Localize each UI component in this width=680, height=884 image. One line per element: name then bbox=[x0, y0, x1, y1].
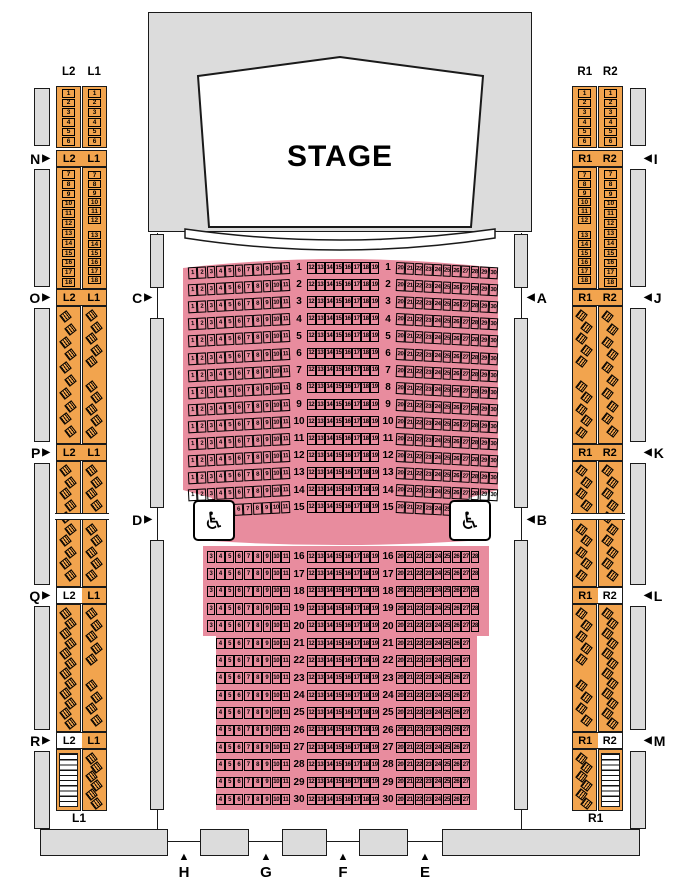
seat: 20 bbox=[396, 348, 405, 360]
seat: 17 bbox=[352, 707, 361, 719]
seat: 20 bbox=[396, 759, 405, 771]
seat: 28 bbox=[470, 454, 479, 466]
seat: 9 bbox=[262, 777, 271, 789]
seat: 13 bbox=[316, 707, 325, 719]
seat: 5 bbox=[225, 436, 234, 448]
seat: 17 bbox=[352, 501, 361, 513]
seat: 7 bbox=[244, 672, 253, 684]
seat: 27 bbox=[461, 690, 470, 702]
seat: 6 bbox=[235, 586, 244, 598]
seat: 8 bbox=[253, 366, 262, 378]
seat: 16 bbox=[343, 551, 352, 563]
seat: 17 bbox=[352, 551, 361, 563]
seat: 19 bbox=[370, 568, 379, 580]
seat: 19 bbox=[370, 313, 379, 325]
seat: 9 bbox=[262, 725, 271, 737]
seat: 19 bbox=[370, 655, 379, 667]
seat: 4 bbox=[216, 742, 225, 754]
seat: 5 bbox=[578, 128, 591, 137]
seat: 8 bbox=[253, 281, 262, 293]
seat: 15 bbox=[334, 586, 343, 598]
door-label-J: J bbox=[654, 291, 662, 305]
right-band-label: R1 bbox=[573, 733, 598, 748]
seat: 14 bbox=[325, 586, 334, 598]
seat: 27 bbox=[461, 283, 470, 295]
left-band-label: L1 bbox=[82, 151, 107, 166]
seat: 11 bbox=[281, 551, 290, 563]
box-R2-section-5 bbox=[598, 604, 623, 732]
stage-apron bbox=[185, 229, 495, 250]
orchestra-row-23-center-block: 1213141516171819 bbox=[307, 672, 379, 684]
seat: 29 bbox=[479, 386, 488, 398]
orchestra-row-25-left-block: 4567891011 bbox=[216, 707, 290, 719]
seat: 16 bbox=[343, 568, 352, 580]
seat: 8 bbox=[253, 638, 262, 650]
seat: 15 bbox=[334, 777, 343, 789]
seat: 4 bbox=[216, 690, 225, 702]
angled-seat-group bbox=[599, 609, 624, 729]
entrance-label-G: G bbox=[260, 863, 272, 883]
seat: 8 bbox=[253, 603, 262, 615]
seat: 3 bbox=[604, 108, 617, 117]
seat: 17 bbox=[352, 759, 361, 771]
seat: 6 bbox=[234, 794, 243, 806]
orchestra-row-6-center-block: 1213141516171819 bbox=[307, 348, 379, 360]
seat: 13 bbox=[316, 313, 325, 325]
seat: 12 bbox=[307, 620, 316, 632]
orchestra-row-17-right-block: 202122232425262728 bbox=[396, 568, 479, 580]
seat: 15 bbox=[334, 313, 343, 325]
inner-left-wall bbox=[150, 540, 164, 810]
seat: 12 bbox=[307, 501, 316, 513]
seat: 9 bbox=[262, 280, 271, 292]
seat: 18 bbox=[88, 276, 101, 284]
seat: 6 bbox=[234, 282, 243, 294]
seat: 19 bbox=[370, 707, 379, 719]
theater-seating-chart: STAGE L2L1123456123456L2L178910111213141… bbox=[0, 0, 680, 884]
seat: 2 bbox=[197, 454, 206, 466]
orchestra-row-22-center-block: 1213141516171819 bbox=[307, 655, 379, 667]
angled-seat-group bbox=[83, 466, 108, 512]
seat: 22 bbox=[415, 551, 424, 563]
door-arrow-icon: ◀ bbox=[644, 293, 652, 303]
seat-group: 123456 bbox=[62, 89, 75, 147]
seat: 10 bbox=[272, 568, 281, 580]
angled-seat-group bbox=[83, 609, 108, 667]
seat: 17 bbox=[352, 725, 361, 737]
seat: 13 bbox=[316, 279, 325, 291]
seat: 8 bbox=[253, 298, 262, 310]
seat: 8 bbox=[253, 434, 262, 446]
seat: 29 bbox=[479, 301, 488, 313]
seat: 20 bbox=[396, 330, 405, 342]
seat: 25 bbox=[443, 672, 452, 684]
door-label-I: I bbox=[654, 152, 658, 166]
seat: 21 bbox=[405, 262, 414, 274]
seat: 27 bbox=[461, 620, 470, 632]
seat: 6 bbox=[604, 137, 617, 146]
orchestra-row-18-right-block: 202122232425262728 bbox=[396, 586, 479, 598]
door-label-K: K bbox=[654, 446, 664, 460]
seat: 3 bbox=[206, 283, 215, 295]
entrance-marker-E: ▲E bbox=[412, 852, 438, 882]
angled-seat bbox=[59, 464, 72, 477]
seat: 19 bbox=[370, 794, 379, 806]
seat: 14 bbox=[325, 655, 334, 667]
seat: 5 bbox=[225, 655, 234, 667]
seat: 11 bbox=[281, 433, 290, 445]
seat: 4 bbox=[216, 488, 225, 500]
seat: 18 bbox=[361, 399, 370, 411]
seat: 12 bbox=[307, 382, 316, 394]
orchestra-row-21-right-block: 2021222324252627 bbox=[396, 638, 470, 650]
entrance-label-E: E bbox=[420, 863, 430, 883]
seat: 28 bbox=[470, 283, 479, 295]
lobby-door-line bbox=[168, 841, 200, 842]
angled-seat bbox=[85, 309, 98, 322]
seat: 11 bbox=[281, 794, 290, 806]
seat: 11 bbox=[281, 296, 290, 308]
seat: 15 bbox=[334, 672, 343, 684]
angled-seat bbox=[580, 714, 593, 727]
orchestra-row-29-center-block: 1213141516171819 bbox=[307, 777, 379, 789]
wheelchair-icon: ♿ bbox=[193, 500, 235, 541]
seat: 15 bbox=[334, 399, 343, 411]
orchestra-row-19-right-block: 202122232425262728 bbox=[396, 603, 479, 615]
seat: 10 bbox=[272, 725, 281, 737]
right-band-label: R1 bbox=[573, 290, 598, 305]
seat: 16 bbox=[343, 672, 352, 684]
door-label-M: M bbox=[654, 734, 666, 748]
seat: 6 bbox=[234, 453, 243, 465]
right-band-label: R1 bbox=[573, 151, 598, 166]
seat: 13 bbox=[316, 467, 325, 479]
seat: 13 bbox=[316, 690, 325, 702]
seat: 21 bbox=[405, 348, 414, 360]
angled-seat bbox=[575, 702, 588, 715]
seat: 4 bbox=[216, 300, 225, 312]
seat: 19 bbox=[370, 603, 379, 615]
door-marker-N: N▶ bbox=[0, 152, 50, 167]
right-box-band: R1R2 bbox=[572, 289, 623, 306]
seat: 6 bbox=[234, 655, 243, 667]
seat: 12 bbox=[578, 216, 591, 224]
seat: 8 bbox=[253, 486, 262, 498]
orchestra-row-30-right-block: 2021222324252627 bbox=[396, 794, 470, 806]
seat: 11 bbox=[281, 279, 290, 291]
seat: 9 bbox=[263, 603, 272, 615]
seat: 8 bbox=[88, 180, 101, 188]
seat: 28 bbox=[470, 266, 479, 278]
seat: 26 bbox=[451, 470, 460, 482]
seat: 3 bbox=[207, 568, 216, 580]
angled-seat bbox=[575, 679, 588, 692]
seat: 14 bbox=[325, 725, 334, 737]
right-outer-wall bbox=[630, 751, 646, 829]
right-band-label: R2 bbox=[598, 588, 623, 603]
angled-seat bbox=[59, 557, 72, 570]
seat: 1 bbox=[188, 438, 197, 450]
seat: 18 bbox=[62, 278, 75, 287]
seat: 5 bbox=[225, 333, 234, 345]
angled-seat bbox=[64, 717, 77, 730]
lobby-wall-segment bbox=[359, 829, 408, 856]
seat: 22 bbox=[414, 348, 423, 360]
seat: 11 bbox=[281, 568, 290, 580]
angled-seat bbox=[606, 400, 619, 413]
seat: 29 bbox=[479, 489, 488, 501]
seat: 24 bbox=[433, 794, 442, 806]
seat: 6 bbox=[578, 137, 591, 146]
seat: 13 bbox=[316, 725, 325, 737]
seat: 13 bbox=[316, 296, 325, 308]
angled-seat-group bbox=[573, 466, 598, 512]
seat: 10 bbox=[272, 794, 281, 806]
orchestra-row-24-left-block: 4567891011 bbox=[216, 690, 290, 702]
seat: 5 bbox=[225, 385, 234, 397]
seat: 5 bbox=[225, 299, 234, 311]
seat: 7 bbox=[244, 298, 253, 310]
seat: 7 bbox=[578, 171, 591, 179]
seat: 27 bbox=[461, 368, 470, 380]
orchestra-row-4-center-block: 1213141516171819 bbox=[307, 313, 379, 325]
angled-seat bbox=[575, 309, 588, 322]
seat: 9 bbox=[262, 348, 271, 360]
seat: 10 bbox=[272, 485, 281, 497]
seat: 27 bbox=[461, 794, 470, 806]
orchestra-row-20-center-block: 1213141516171819 bbox=[307, 620, 379, 632]
orchestra-row-14-center-block: 1213141516171819 bbox=[307, 484, 379, 496]
seat: 21 bbox=[405, 399, 414, 411]
seat: 24 bbox=[433, 707, 442, 719]
seat: 5 bbox=[225, 350, 234, 362]
row-number-right: 18 bbox=[381, 586, 395, 598]
seat: 16 bbox=[343, 794, 352, 806]
seat: 30 bbox=[489, 301, 498, 313]
right-box-band: R1R2 bbox=[572, 444, 623, 461]
orchestra-row-28-center-block: 1213141516171819 bbox=[307, 759, 379, 771]
seat: 16 bbox=[88, 258, 101, 266]
seat: 8 bbox=[253, 690, 262, 702]
seat: 18 bbox=[361, 433, 370, 445]
seat: 2 bbox=[578, 99, 591, 108]
angled-seat bbox=[580, 391, 593, 404]
seat: 13 bbox=[316, 399, 325, 411]
seat: 28 bbox=[470, 386, 479, 398]
row-number-right: 11 bbox=[381, 433, 395, 445]
seat: 16 bbox=[343, 501, 352, 513]
seat: 4 bbox=[216, 317, 225, 329]
seat: 7 bbox=[244, 486, 253, 498]
seat: 28 bbox=[470, 317, 479, 329]
seat: 9 bbox=[262, 742, 271, 754]
orchestra-row-29-left-block: 4567891011 bbox=[216, 777, 290, 789]
box-R2-section-4 bbox=[598, 461, 623, 587]
seat: 25 bbox=[442, 264, 451, 276]
seat: 6 bbox=[234, 333, 243, 345]
seat: 27 bbox=[461, 385, 470, 397]
seat: 17 bbox=[352, 672, 361, 684]
angled-seat bbox=[575, 653, 588, 666]
seat: 7 bbox=[244, 367, 253, 379]
orchestra-row-18-center-block: 1213141516171819 bbox=[307, 586, 379, 598]
angled-seat bbox=[90, 557, 103, 570]
door-marker-B: ◀B bbox=[527, 512, 567, 527]
angled-seat bbox=[601, 464, 614, 477]
angled-seat bbox=[90, 391, 103, 404]
box-L2-section-4 bbox=[56, 461, 81, 587]
seat: 2 bbox=[197, 318, 206, 330]
seat: 16 bbox=[343, 416, 352, 428]
door-arrow-icon: ▶ bbox=[144, 515, 152, 525]
seat: 5 bbox=[225, 777, 234, 789]
seat: 15 bbox=[334, 742, 343, 754]
seat: 6 bbox=[234, 725, 243, 737]
angled-seat bbox=[580, 557, 593, 570]
seat: 14 bbox=[325, 365, 334, 377]
seat: 3 bbox=[206, 317, 215, 329]
seat: 24 bbox=[433, 298, 442, 310]
right-box-band: R1R2 bbox=[572, 587, 623, 604]
seat: 12 bbox=[307, 759, 316, 771]
door-arrow-icon: ▶ bbox=[42, 448, 50, 458]
seat: 30 bbox=[489, 318, 498, 330]
lobby-door-line bbox=[408, 841, 442, 842]
seat: 29 bbox=[479, 266, 488, 278]
seat: 18 bbox=[361, 262, 370, 274]
row-number-left: 5 bbox=[292, 330, 306, 342]
seat: 24 bbox=[433, 777, 442, 789]
seat: 10 bbox=[272, 742, 281, 754]
door-marker-A: ◀A bbox=[527, 290, 567, 305]
seat: 21 bbox=[405, 365, 414, 377]
seat: 4 bbox=[216, 454, 225, 466]
seat: 21 bbox=[405, 742, 414, 754]
seat: 10 bbox=[272, 382, 281, 394]
seat: 20 bbox=[396, 433, 405, 445]
seat: 6 bbox=[234, 350, 243, 362]
seat: 14 bbox=[325, 416, 334, 428]
seat: 11 bbox=[281, 620, 290, 632]
row-number-left: 9 bbox=[292, 399, 306, 411]
lobby-wall-segment bbox=[442, 829, 640, 856]
angled-seat bbox=[64, 400, 77, 413]
seat: 4 bbox=[216, 368, 225, 380]
orchestra-row-8-center-block: 1213141516171819 bbox=[307, 382, 379, 394]
left-band-label: L1 bbox=[82, 445, 107, 460]
seat: 2 bbox=[197, 437, 206, 449]
row-number-left: 26 bbox=[292, 725, 306, 737]
seat: 2 bbox=[197, 301, 206, 313]
seat: 22 bbox=[414, 280, 423, 292]
seat: 22 bbox=[415, 655, 424, 667]
seat: 24 bbox=[433, 725, 442, 737]
seat: 26 bbox=[451, 316, 460, 328]
seat: 7 bbox=[62, 170, 75, 179]
seat: 5 bbox=[604, 128, 617, 137]
seat: 26 bbox=[452, 759, 461, 771]
seat: 7 bbox=[244, 452, 253, 464]
seat: 5 bbox=[225, 707, 234, 719]
inner-right-wall bbox=[514, 318, 528, 508]
orchestra-row-16-center-block: 1213141516171819 bbox=[307, 551, 379, 563]
orchestra-row-15-center-block: 1213141516171819 bbox=[307, 501, 379, 513]
seat: 8 bbox=[253, 469, 262, 481]
angled-seat bbox=[606, 323, 619, 336]
seat: 20 bbox=[396, 279, 405, 291]
lobby-door-line bbox=[249, 841, 282, 842]
seat: 19 bbox=[370, 672, 379, 684]
seat: 21 bbox=[405, 502, 414, 514]
seat: 13 bbox=[316, 382, 325, 394]
seat: 23 bbox=[424, 366, 433, 378]
angled-seat bbox=[85, 426, 98, 439]
orchestra-row-26-right-block: 2021222324252627 bbox=[396, 725, 470, 737]
seat: 25 bbox=[442, 470, 451, 482]
seat: 21 bbox=[405, 297, 414, 309]
seat: 12 bbox=[307, 450, 316, 462]
seat: 23 bbox=[424, 400, 433, 412]
seat: 11 bbox=[281, 382, 290, 394]
orchestra-row-16-left-block: 34567891011 bbox=[207, 551, 290, 563]
seat: 5 bbox=[225, 551, 234, 563]
door-marker-J: ◀J bbox=[644, 291, 680, 306]
orchestra-row-18-left-block: 34567891011 bbox=[207, 586, 290, 598]
seat: 4 bbox=[216, 283, 225, 295]
seat: 27 bbox=[461, 725, 470, 737]
seat: 22 bbox=[415, 603, 424, 615]
angled-seat-group bbox=[57, 312, 82, 440]
row-number-left: 13 bbox=[292, 467, 306, 479]
seat: 16 bbox=[343, 638, 352, 650]
seat: 15 bbox=[334, 365, 343, 377]
seat: 28 bbox=[470, 351, 479, 363]
seat: 18 bbox=[361, 450, 370, 462]
seat: 9 bbox=[262, 759, 271, 771]
seat: 21 bbox=[405, 794, 414, 806]
angled-seat bbox=[606, 569, 619, 582]
angled-seat bbox=[575, 464, 588, 477]
seat: 3 bbox=[206, 403, 215, 415]
angled-seat bbox=[580, 619, 593, 632]
angled-seat bbox=[606, 546, 619, 559]
left-band-label: L1 bbox=[82, 733, 107, 748]
angled-seat bbox=[601, 487, 614, 500]
entrance-marker-G: ▲G bbox=[253, 852, 279, 882]
seat: 6 bbox=[234, 487, 243, 499]
seat: 6 bbox=[234, 504, 243, 516]
orchestra-row-28-left-block: 4567891011 bbox=[216, 759, 290, 771]
seat: 1 bbox=[578, 89, 591, 98]
seat: 15 bbox=[334, 707, 343, 719]
seat: 15 bbox=[334, 433, 343, 445]
inner-right-wall bbox=[514, 540, 528, 810]
seat: 17 bbox=[352, 777, 361, 789]
seat: 9 bbox=[62, 190, 75, 199]
seat-group: 789101112 bbox=[578, 171, 591, 225]
seat: 16 bbox=[343, 690, 352, 702]
seat: 22 bbox=[415, 638, 424, 650]
row-number-right: 16 bbox=[381, 551, 395, 563]
seat: 20 bbox=[396, 551, 405, 563]
seat: 17 bbox=[352, 638, 361, 650]
seat: 12 bbox=[307, 794, 316, 806]
seat: 3 bbox=[206, 437, 215, 449]
seat: 22 bbox=[415, 620, 424, 632]
seat: 14 bbox=[325, 450, 334, 462]
seat: 3 bbox=[206, 334, 215, 346]
seat: 27 bbox=[461, 351, 470, 363]
